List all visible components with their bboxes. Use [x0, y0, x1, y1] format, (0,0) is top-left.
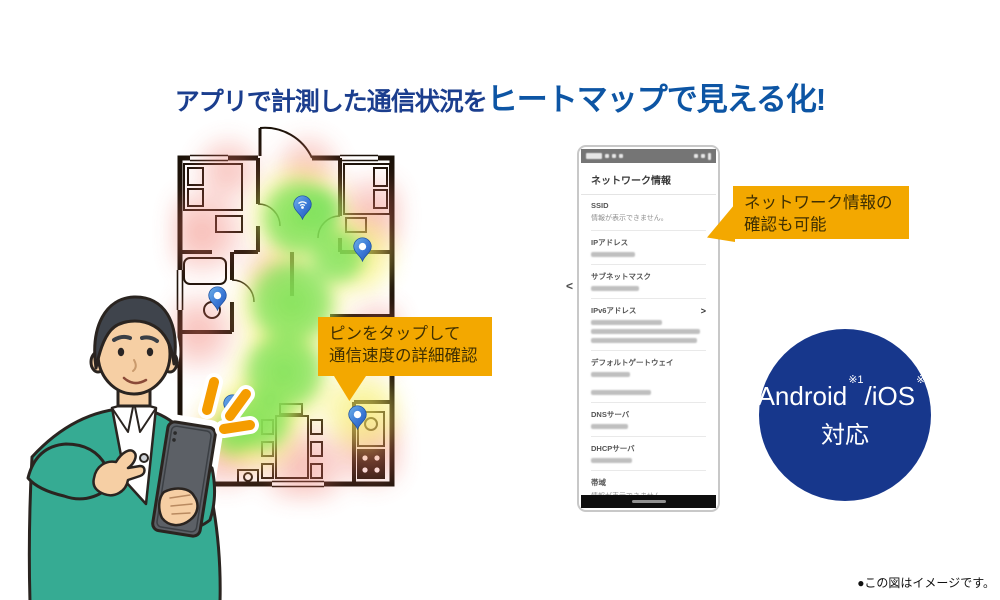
platform-badge: Android※1/iOS※2 対応	[759, 329, 931, 501]
network-field: デフォルトゲートウェイ	[591, 350, 706, 402]
masked-value	[591, 320, 662, 325]
home-pill	[632, 500, 666, 503]
gesture-nav-bar	[581, 495, 716, 508]
app-screen-title: ネットワーク情報	[581, 163, 716, 195]
map-pin-router	[293, 195, 312, 220]
network-field: SSID情報が表示できません。	[591, 195, 706, 230]
platform-names: Android※1/iOS※2	[758, 381, 933, 412]
promo-banner: アプリで計測した通信状況をヒートマップで見える化!	[0, 0, 1000, 600]
title-highlight: ヒートマップで見える化!	[487, 82, 825, 117]
platform-android: Android	[758, 381, 848, 411]
notification-icon	[612, 154, 616, 158]
phone-screen: ネットワーク情報 SSID情報が表示できません。IPアドレスサブネットマスクIP…	[581, 149, 716, 508]
masked-value	[591, 329, 700, 334]
notification-icon	[605, 154, 609, 158]
network-field: 帯域情報が表示できません。	[591, 470, 706, 495]
masked-value	[591, 424, 628, 429]
title-lead: アプリで計測した通信状況を	[175, 88, 487, 116]
callout-pin-line2: 通信速度の詳細確認	[329, 346, 481, 368]
network-field: サブネットマスク	[591, 264, 706, 298]
status-bar	[581, 149, 716, 163]
badge-suffix: 対応	[821, 415, 869, 450]
masked-value	[591, 252, 635, 257]
callout-net-line1: ネットワーク情報の	[744, 193, 898, 215]
masked-value	[591, 390, 651, 395]
footnote-ref-2: ※2	[916, 374, 931, 386]
map-pin-measure	[348, 405, 367, 430]
callout-network-info: ネットワーク情報の 確認も可能	[733, 186, 909, 239]
callout-net-line2: 確認も可能	[744, 215, 898, 237]
masked-value	[591, 286, 639, 291]
network-field: IPアドレス	[591, 230, 706, 264]
image-disclaimer: ●この図はイメージです。	[857, 574, 995, 591]
network-field: DHCPサーバ	[591, 436, 706, 470]
callout-pin-line1: ピンをタップして	[329, 324, 481, 346]
network-field: DNSサーバ	[591, 402, 706, 436]
map-pin-measure	[353, 237, 372, 262]
chevron-right-icon[interactable]: >	[701, 306, 706, 316]
notification-icon	[619, 154, 623, 158]
wifi-status-icon	[701, 154, 705, 158]
status-time-masked	[586, 153, 602, 159]
signal-icon	[694, 154, 698, 158]
smartphone-screenshot: ネットワーク情報 SSID情報が表示できません。IPアドレスサブネットマスクIP…	[577, 145, 720, 512]
tap-burst-icon	[188, 372, 266, 444]
callout-pin-tap: ピンをタップして 通信速度の詳細確認	[318, 317, 492, 376]
battery-icon	[708, 153, 711, 160]
chevron-left-icon[interactable]: <	[566, 279, 573, 293]
network-field: IPv6アドレス>	[591, 298, 706, 350]
footnote-ref-1: ※1	[848, 374, 863, 386]
masked-value	[591, 372, 630, 377]
page-title: アプリで計測した通信状況をヒートマップで見える化!	[0, 74, 1000, 119]
platform-ios: /iOS	[865, 381, 916, 411]
masked-value	[591, 458, 632, 463]
phone-field-list: SSID情報が表示できません。IPアドレスサブネットマスクIPv6アドレス>デフ…	[581, 195, 716, 495]
masked-value	[591, 338, 697, 343]
